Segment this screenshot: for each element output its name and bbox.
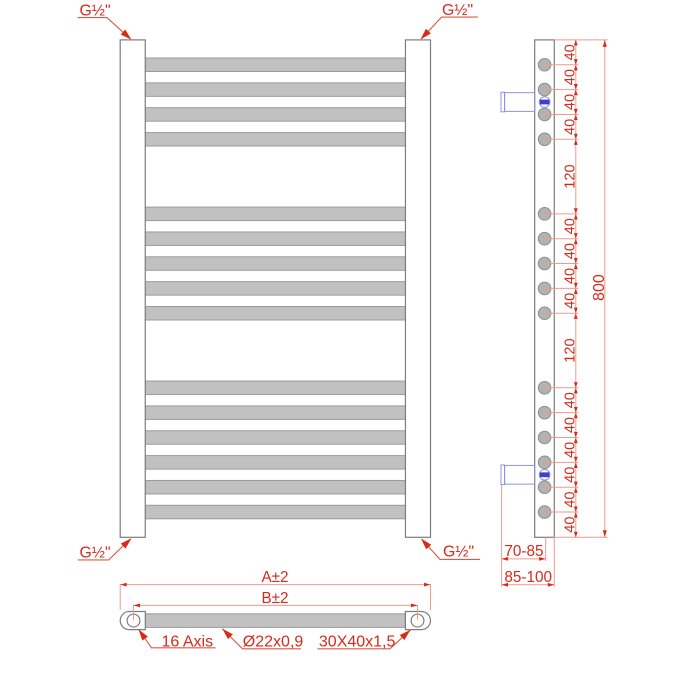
svg-text:800: 800 <box>591 274 608 301</box>
svg-text:40: 40 <box>562 392 578 408</box>
svg-text:G½": G½" <box>443 544 474 561</box>
svg-text:120: 120 <box>562 338 578 362</box>
svg-text:70-85: 70-85 <box>504 543 543 560</box>
svg-text:40: 40 <box>562 94 578 110</box>
svg-text:40: 40 <box>562 293 578 309</box>
svg-text:16 Axis: 16 Axis <box>162 634 214 651</box>
svg-text:40: 40 <box>562 69 578 85</box>
svg-text:40: 40 <box>562 442 578 458</box>
svg-text:40: 40 <box>562 268 578 284</box>
svg-text:40: 40 <box>562 119 578 135</box>
svg-text:Ø22x0,9: Ø22x0,9 <box>243 634 304 651</box>
svg-text:G½": G½" <box>442 2 473 19</box>
svg-text:A±2: A±2 <box>261 569 288 586</box>
svg-text:30X40x1,5: 30X40x1,5 <box>319 634 396 651</box>
svg-text:40: 40 <box>562 467 578 483</box>
svg-text:G½": G½" <box>80 3 111 20</box>
svg-text:B±2: B±2 <box>261 590 288 607</box>
svg-text:40: 40 <box>562 417 578 433</box>
svg-text:G½": G½" <box>80 545 111 562</box>
svg-text:40: 40 <box>562 218 578 234</box>
svg-text:120: 120 <box>562 164 578 188</box>
svg-text:40: 40 <box>562 44 578 60</box>
svg-text:40: 40 <box>562 243 578 259</box>
svg-text:40: 40 <box>562 517 578 533</box>
svg-text:85-100: 85-100 <box>504 569 552 586</box>
svg-text:40: 40 <box>562 492 578 508</box>
